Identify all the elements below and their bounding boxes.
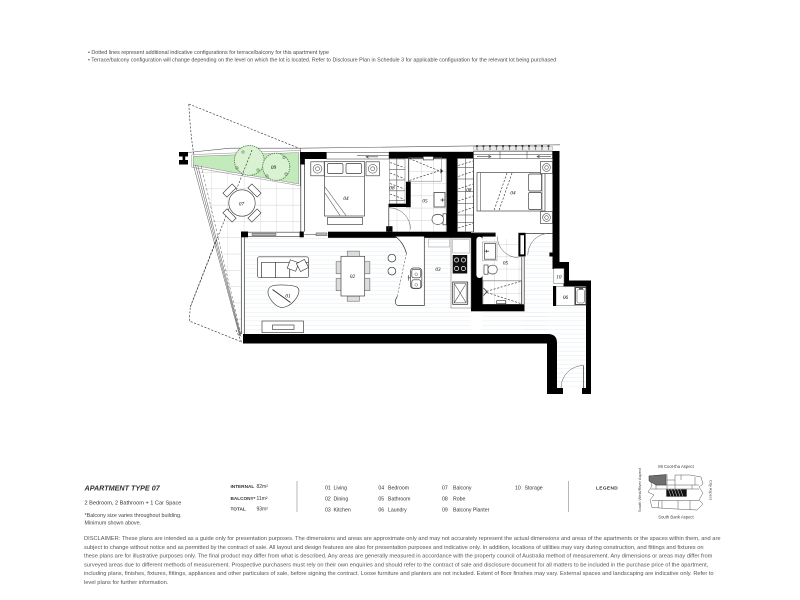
svg-text:including plans, finishes, fix: including plans, finishes, fixtures, fit… [84,571,714,577]
svg-text:05: 05 [422,199,428,205]
svg-text:Balcony: Balcony [453,485,472,491]
svg-text:04: 04 [343,195,349,202]
svg-text:subject to change without noti: subject to change without notice and as … [84,545,704,551]
svg-text:Bathroom: Bathroom [388,497,411,503]
svg-text:02: 02 [325,497,331,503]
svg-text:Robe: Robe [453,497,466,503]
svg-text:Kitchen: Kitchen [334,508,351,514]
svg-text:INTERNAL: INTERNAL [231,484,255,489]
svg-text:these plans are for illustrati: these plans are for illustrative purpose… [84,554,713,560]
svg-text:Bedroom: Bedroom [388,485,409,491]
svg-text:Living: Living [334,485,348,491]
svg-text:04: 04 [510,190,516,197]
svg-text:03: 03 [435,267,441,273]
svg-text:06: 06 [378,508,384,514]
svg-text:05: 05 [503,261,509,267]
svg-text:04: 04 [378,485,384,491]
svg-text:Laundry: Laundry [388,508,407,514]
svg-text:05: 05 [378,497,384,503]
svg-text:BALCONY*: BALCONY* [231,496,256,501]
svg-text:Minimum shown above.: Minimum shown above. [85,521,142,527]
svg-text:09: 09 [442,508,448,514]
svg-text:2 Bedroom, 2 Bathroom + 1 Car: 2 Bedroom, 2 Bathroom + 1 Car Space [85,501,182,507]
svg-text:Dining: Dining [334,497,349,503]
svg-text:08: 08 [442,497,448,503]
svg-text:06: 06 [563,295,569,301]
svg-text:11m²: 11m² [257,496,268,502]
svg-text:APARTMENT TYPE 07: APARTMENT TYPE 07 [84,484,161,493]
svg-text:LEGEND: LEGEND [596,486,618,492]
svg-text:• Dotted lines represent addit: • Dotted lines represent additional indi… [88,50,329,56]
svg-text:TOTAL: TOTAL [231,507,246,512]
svg-text:07: 07 [239,202,245,208]
svg-text:07: 07 [442,485,448,491]
svg-text:03: 03 [325,508,331,514]
svg-text:level plans for further inform: level plans for further information. [84,580,169,586]
svg-text:surveyed areas due to differen: surveyed areas due to different methods … [84,562,709,568]
svg-text:09: 09 [271,165,277,171]
svg-text:93m²: 93m² [257,507,269,513]
svg-text:*Balcony size varies throughou: *Balcony size varies throughout building… [85,513,182,519]
svg-text:Mt Coot-tha Aspect: Mt Coot-tha Aspect [658,464,694,469]
svg-text:• Terrace/balcony configuratio: • Terrace/balcony configuration will cha… [88,57,556,63]
svg-text:City Aspect: City Aspect [709,480,714,501]
svg-text:08: 08 [389,186,395,192]
svg-text:10: 10 [556,275,562,281]
svg-text:Storage: Storage [525,485,543,491]
svg-text:01: 01 [325,485,331,491]
svg-text:01: 01 [285,294,291,300]
svg-text:82m²: 82m² [257,484,269,490]
svg-text:08: 08 [466,188,472,194]
svg-text:10: 10 [515,485,521,491]
svg-text:02: 02 [350,274,356,280]
svg-text:South Bank Aspect: South Bank Aspect [658,515,694,520]
svg-text:DISCLAIMER: These plans are in: DISCLAIMER: These plans are intended as … [84,536,721,542]
svg-text:Balcony Planter: Balcony Planter [453,508,490,514]
svg-text:South West/River Aspect: South West/River Aspect [637,467,642,512]
